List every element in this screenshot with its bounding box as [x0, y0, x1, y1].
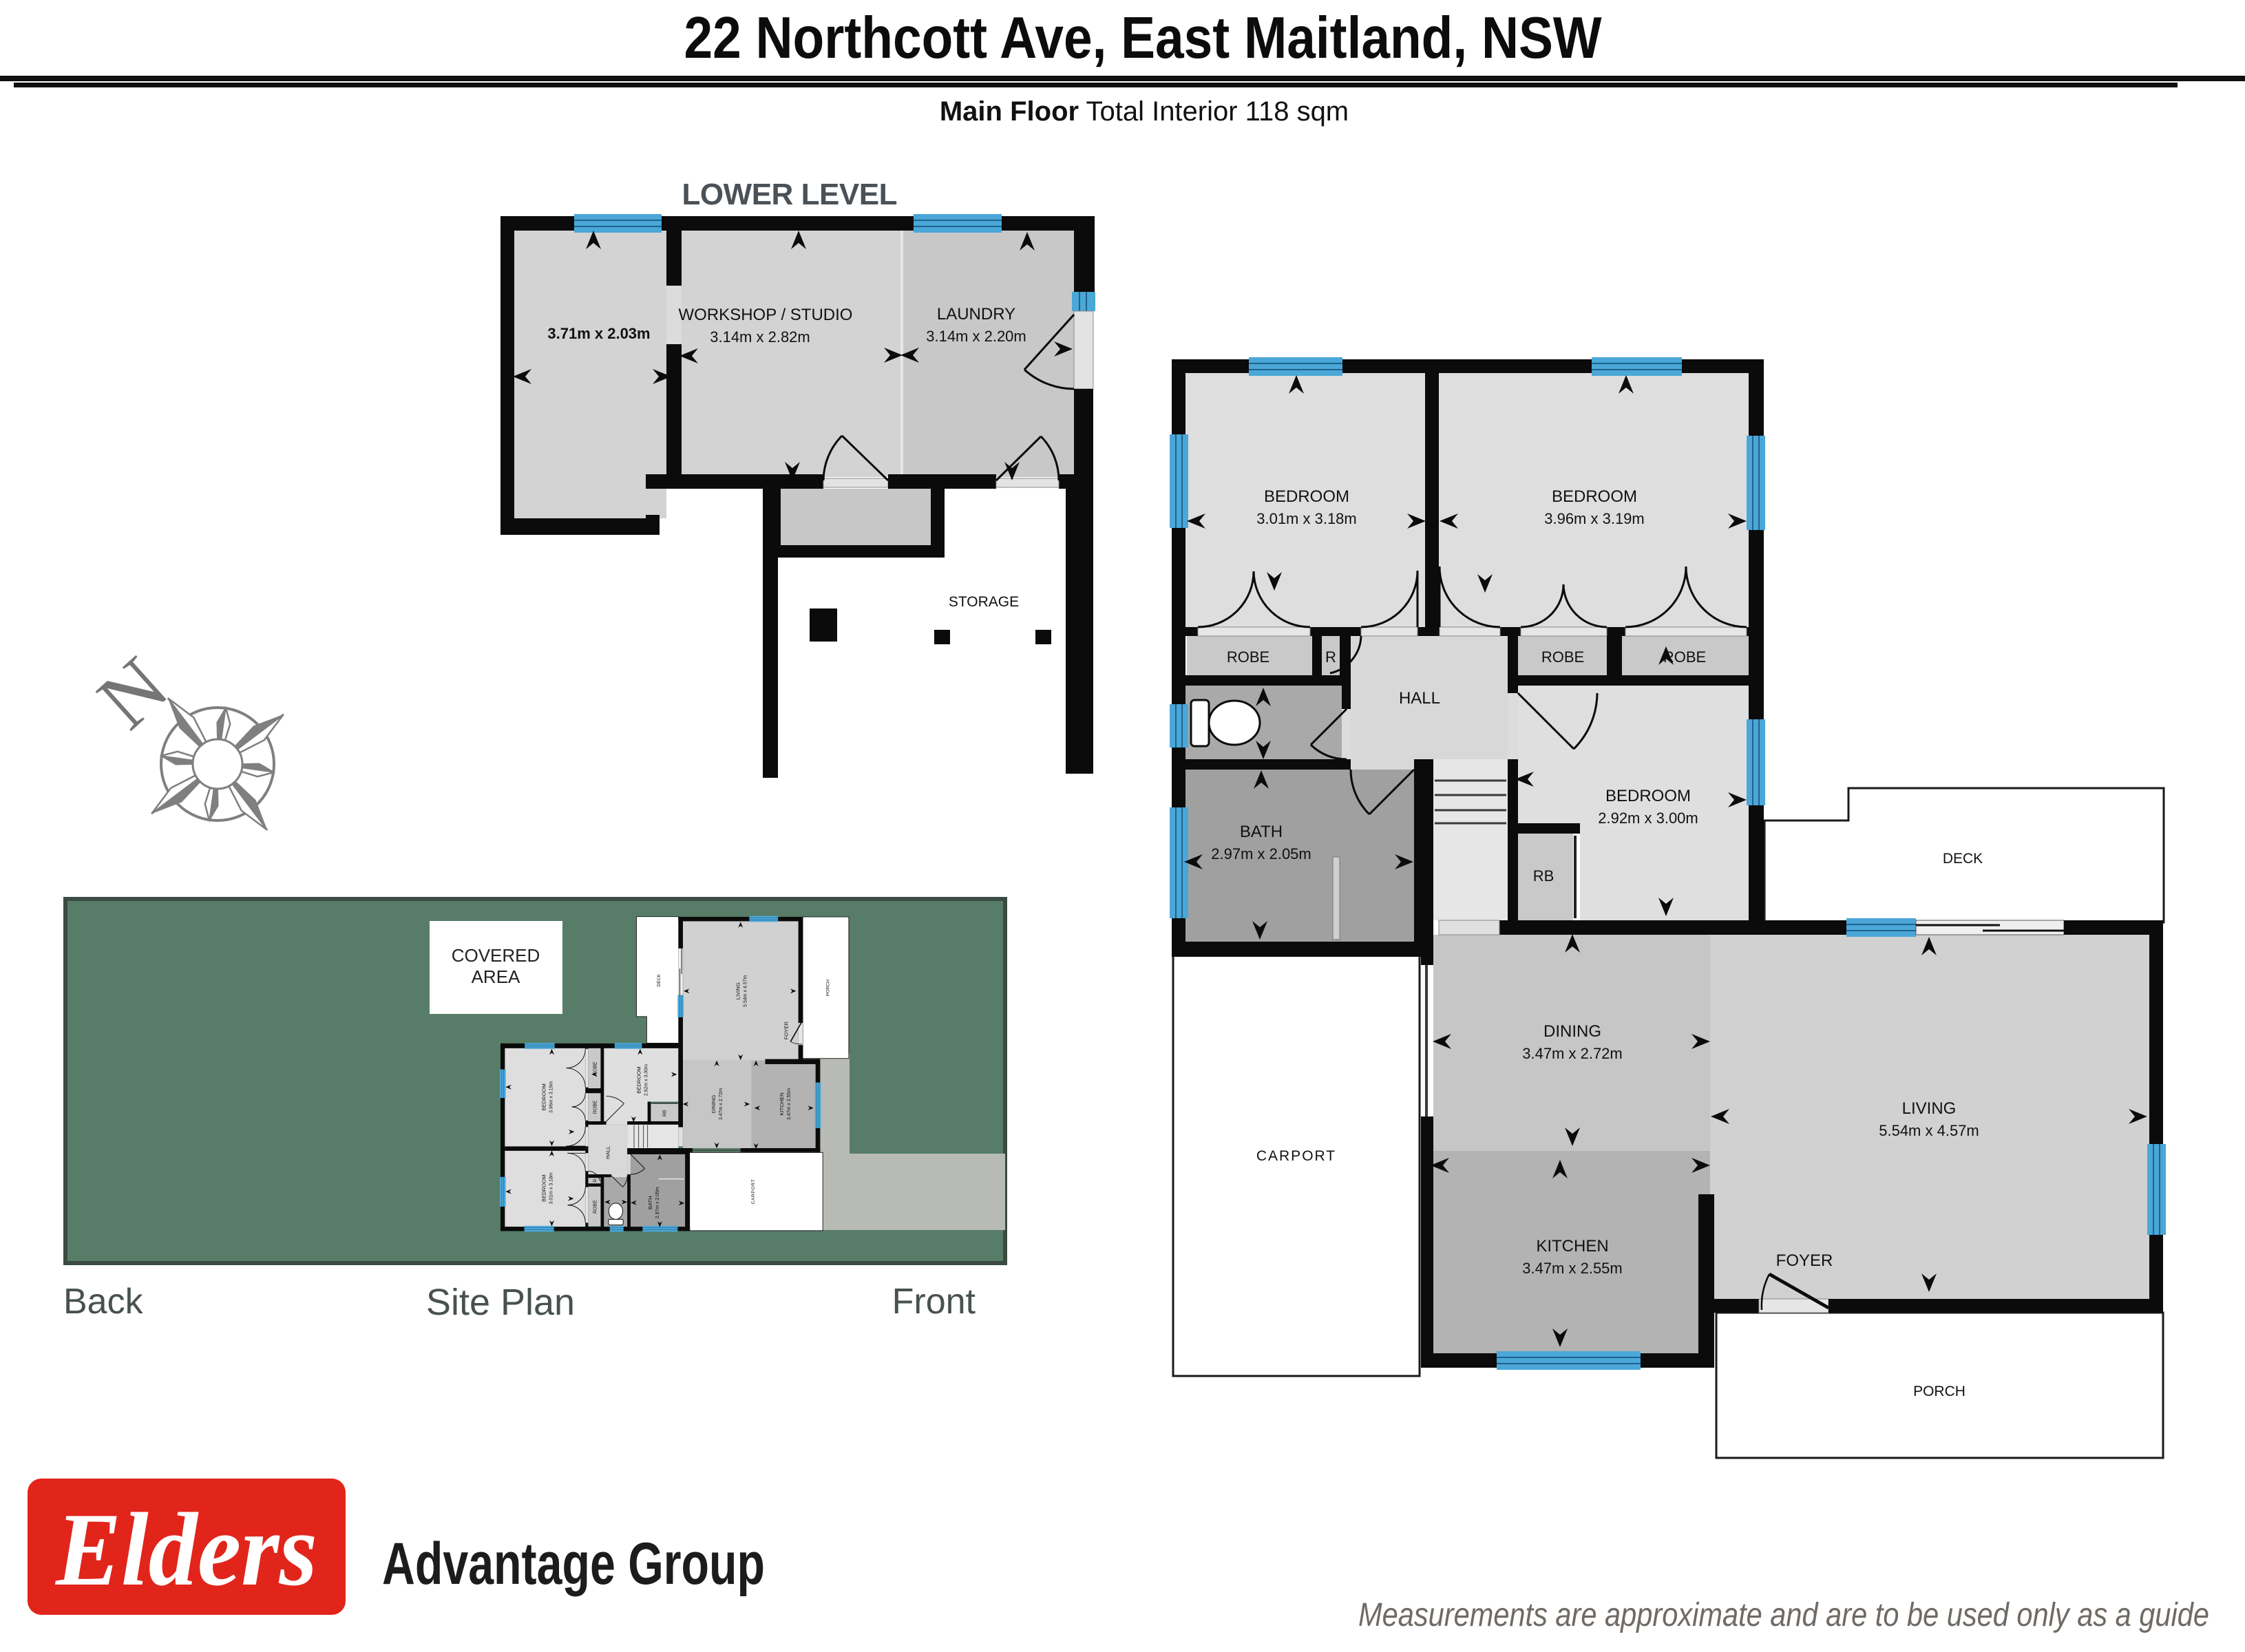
svg-text:WORKSHOP / STUDIO: WORKSHOP / STUDIO — [679, 306, 853, 324]
svg-text:CARPORT: CARPORT — [1256, 1148, 1336, 1164]
svg-text:BEDROOM: BEDROOM — [1552, 487, 1637, 506]
svg-text:DECK: DECK — [1943, 851, 1983, 867]
svg-text:BATH: BATH — [1240, 823, 1283, 841]
svg-text:3.01m x 3.18m: 3.01m x 3.18m — [1256, 510, 1357, 527]
svg-text:KITCHEN: KITCHEN — [1536, 1237, 1608, 1256]
svg-text:3.14m x 2.20m: 3.14m x 2.20m — [926, 328, 1026, 345]
svg-text:3.14m x 2.82m: 3.14m x 2.82m — [710, 328, 810, 346]
svg-text:Back: Back — [63, 1282, 144, 1322]
svg-text:5.54m x 4.57m: 5.54m x 4.57m — [1879, 1122, 1979, 1139]
svg-text:3.47m x 2.72m: 3.47m x 2.72m — [1522, 1045, 1623, 1062]
svg-text:HALL: HALL — [1399, 689, 1440, 708]
svg-text:ROBE: ROBE — [1227, 648, 1269, 666]
svg-text:STORAGE: STORAGE — [949, 594, 1019, 610]
svg-text:LAUNDRY: LAUNDRY — [937, 305, 1015, 324]
svg-text:BEDROOM: BEDROOM — [1605, 787, 1691, 805]
svg-text:R: R — [1325, 648, 1336, 666]
svg-text:Front: Front — [892, 1282, 976, 1322]
svg-text:PORCH: PORCH — [1913, 1384, 1965, 1399]
svg-text:3.47m x 2.55m: 3.47m x 2.55m — [1522, 1260, 1623, 1277]
svg-text:Advantage Group: Advantage Group — [382, 1531, 765, 1597]
svg-text:3.96m x 3.19m: 3.96m x 3.19m — [1544, 510, 1645, 527]
svg-text:LOWER LEVEL: LOWER LEVEL — [682, 178, 899, 211]
svg-text:LIVING: LIVING — [1902, 1099, 1957, 1118]
svg-text:BEDROOM: BEDROOM — [1264, 487, 1349, 506]
svg-text:ROBE: ROBE — [1541, 648, 1584, 666]
svg-text:COVERED: COVERED — [452, 945, 540, 966]
svg-text:3.71m x 2.03m: 3.71m x 2.03m — [547, 325, 650, 342]
svg-text:Measurements are approximate a: Measurements are approximate and are to … — [1358, 1597, 2209, 1633]
svg-text:2.92m x 3.00m: 2.92m x 3.00m — [1598, 809, 1698, 827]
svg-text:DINING: DINING — [1543, 1022, 1601, 1041]
svg-text:2.97m x 2.05m: 2.97m x 2.05m — [1211, 845, 1311, 862]
svg-text:22 Northcott Ave, East Maitlan: 22 Northcott Ave, East Maitland, NSW — [684, 6, 1603, 71]
svg-text:FOYER: FOYER — [1776, 1251, 1833, 1270]
svg-text:RB: RB — [1533, 867, 1554, 885]
svg-text:Elders: Elders — [54, 1492, 317, 1607]
svg-text:AREA: AREA — [472, 966, 520, 987]
svg-text:Main Floor Total Interior 118: Main Floor Total Interior 118 sqm — [940, 96, 1349, 127]
svg-text:Site Plan: Site Plan — [426, 1282, 575, 1323]
